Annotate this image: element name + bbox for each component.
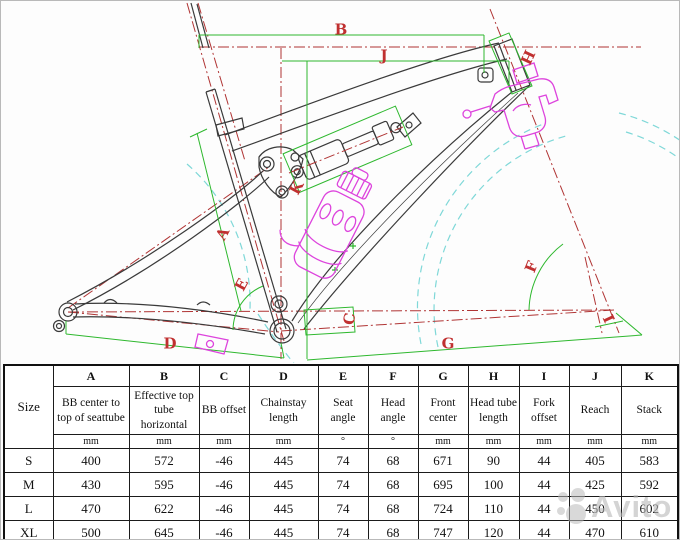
dim-label-G: G: [442, 337, 455, 352]
column-unit-E: °: [318, 435, 368, 449]
value-L-A: 470: [53, 497, 129, 521]
column-desc-F: Head angle: [368, 387, 418, 435]
value-XL-C: -46: [199, 521, 249, 540]
value-S-G: 671: [418, 449, 468, 473]
diagram-labels: ABCDEFGHIJK: [1, 1, 680, 363]
value-M-C: -46: [199, 473, 249, 497]
value-L-B: 622: [129, 497, 199, 521]
dim-label-A: A: [214, 225, 233, 242]
size-row-S: S400572-4644574686719044405583: [4, 449, 678, 473]
value-S-E: 74: [318, 449, 368, 473]
column-unit-H: mm: [468, 435, 519, 449]
size-label-S: S: [4, 449, 53, 473]
value-XL-D: 445: [249, 521, 318, 540]
column-desc-H: Head tube length: [468, 387, 519, 435]
dim-label-H: H: [517, 47, 537, 66]
value-XL-K: 610: [621, 521, 678, 540]
value-M-I: 44: [519, 473, 569, 497]
column-letter-G: G: [418, 365, 468, 387]
size-row-XL: XL500645-46445746874712044470610: [4, 521, 678, 540]
value-S-A: 400: [53, 449, 129, 473]
value-L-G: 724: [418, 497, 468, 521]
value-M-J: 425: [569, 473, 621, 497]
column-letter-A: A: [53, 365, 129, 387]
column-unit-G: mm: [418, 435, 468, 449]
value-L-J: 450: [569, 497, 621, 521]
column-desc-B: Effective top tube horizontal: [129, 387, 199, 435]
column-unit-A: mm: [53, 435, 129, 449]
column-unit-C: mm: [199, 435, 249, 449]
size-label-XL: XL: [4, 521, 53, 540]
value-S-H: 90: [468, 449, 519, 473]
dim-label-C: C: [342, 312, 359, 326]
value-L-H: 110: [468, 497, 519, 521]
value-L-F: 68: [368, 497, 418, 521]
column-unit-I: mm: [519, 435, 569, 449]
value-M-D: 445: [249, 473, 318, 497]
value-S-K: 583: [621, 449, 678, 473]
value-L-C: -46: [199, 497, 249, 521]
value-XL-F: 68: [368, 521, 418, 540]
value-S-J: 405: [569, 449, 621, 473]
frame-geometry-diagram: ABCDEFGHIJK: [1, 1, 680, 363]
column-letter-K: K: [621, 365, 678, 387]
column-desc-E: Seat angle: [318, 387, 368, 435]
dim-label-B: B: [335, 23, 348, 38]
value-XL-B: 645: [129, 521, 199, 540]
value-XL-J: 470: [569, 521, 621, 540]
column-desc-D: Chainstay length: [249, 387, 318, 435]
value-M-K: 592: [621, 473, 678, 497]
column-letter-F: F: [368, 365, 418, 387]
value-M-F: 68: [368, 473, 418, 497]
value-XL-I: 44: [519, 521, 569, 540]
column-desc-A: BB center to top of seattube: [53, 387, 129, 435]
dim-label-E: E: [233, 276, 252, 293]
column-unit-K: mm: [621, 435, 678, 449]
column-unit-F: °: [368, 435, 418, 449]
size-row-L: L470622-46445746872411044450602: [4, 497, 678, 521]
size-label-M: M: [4, 473, 53, 497]
value-S-C: -46: [199, 449, 249, 473]
column-letter-D: D: [249, 365, 318, 387]
column-unit-D: mm: [249, 435, 318, 449]
dim-label-J: J: [380, 49, 387, 64]
value-M-B: 595: [129, 473, 199, 497]
column-letter-H: H: [468, 365, 519, 387]
size-row-M: M430595-46445746869510044425592: [4, 473, 678, 497]
size-header: Size: [4, 365, 53, 449]
value-S-B: 572: [129, 449, 199, 473]
value-S-D: 445: [249, 449, 318, 473]
value-S-I: 44: [519, 449, 569, 473]
column-letter-B: B: [129, 365, 199, 387]
value-M-E: 74: [318, 473, 368, 497]
value-M-G: 695: [418, 473, 468, 497]
value-XL-H: 120: [468, 521, 519, 540]
value-XL-E: 74: [318, 521, 368, 540]
size-label-L: L: [4, 497, 53, 521]
value-L-D: 445: [249, 497, 318, 521]
value-S-F: 68: [368, 449, 418, 473]
column-unit-J: mm: [569, 435, 621, 449]
column-desc-K: Stack: [621, 387, 678, 435]
column-unit-B: mm: [129, 435, 199, 449]
value-L-I: 44: [519, 497, 569, 521]
column-desc-I: Fork offset: [519, 387, 569, 435]
dim-label-K: K: [287, 179, 306, 198]
value-XL-A: 500: [53, 521, 129, 540]
value-XL-G: 747: [418, 521, 468, 540]
geometry-table: SizeABCDEFGHIJKBB center to top of seatt…: [3, 364, 679, 540]
value-L-E: 74: [318, 497, 368, 521]
value-M-H: 100: [468, 473, 519, 497]
column-desc-G: Front center: [418, 387, 468, 435]
column-letter-C: C: [199, 365, 249, 387]
column-letter-I: I: [519, 365, 569, 387]
column-desc-C: BB offset: [199, 387, 249, 435]
screenshot-root: ABCDEFGHIJK SizeABCDEFGHIJKBB center to …: [0, 0, 680, 540]
value-L-K: 602: [621, 497, 678, 521]
dim-label-D: D: [163, 337, 176, 352]
dim-label-I: I: [600, 313, 617, 326]
column-letter-J: J: [569, 365, 621, 387]
dim-label-F: F: [523, 259, 541, 274]
value-M-A: 430: [53, 473, 129, 497]
column-desc-J: Reach: [569, 387, 621, 435]
column-letter-E: E: [318, 365, 368, 387]
